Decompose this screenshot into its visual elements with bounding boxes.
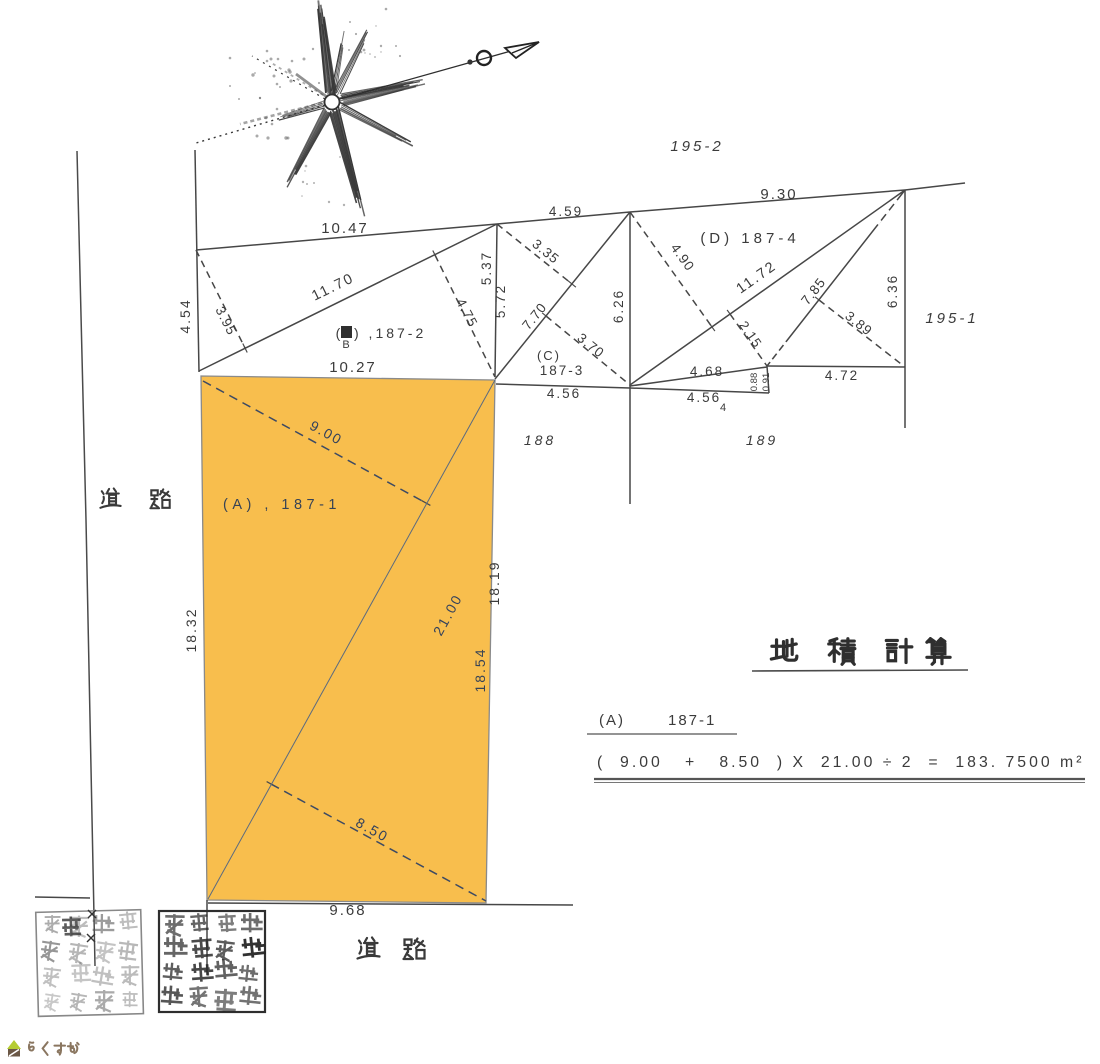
svg-text:195-2: 195-2 [670, 138, 723, 155]
svg-text:18.19: 18.19 [486, 560, 502, 605]
svg-text:9.68: 9.68 [329, 902, 366, 919]
svg-text:4.72: 4.72 [825, 368, 859, 383]
svg-text:6.26: 6.26 [611, 289, 626, 323]
svg-text:18.54: 18.54 [472, 647, 488, 692]
svg-text:) ,187-2: ) ,187-2 [354, 325, 426, 341]
svg-text:188: 188 [524, 432, 556, 448]
svg-text:B: B [342, 339, 349, 351]
svg-text:4: 4 [720, 402, 726, 414]
svg-text:187-3: 187-3 [540, 363, 585, 378]
svg-text:(A): (A) [599, 712, 625, 729]
svg-text:(D) 187-4: (D) 187-4 [700, 230, 799, 247]
svg-text:4.68: 4.68 [690, 364, 724, 379]
svg-text:10.27: 10.27 [329, 359, 377, 376]
svg-text:189: 189 [746, 432, 778, 448]
svg-text:5.37: 5.37 [479, 251, 494, 285]
svg-text:(C): (C) [537, 348, 561, 363]
svg-text:9.30: 9.30 [760, 186, 797, 203]
svg-text:187-1: 187-1 [668, 712, 716, 729]
svg-text:18.32: 18.32 [183, 607, 199, 652]
svg-text:( 9.00 + 8.50 ) X 21.00: ( 9.00 + 8.50 ) X 21.00 ÷ 2 = 183. 7500 … [597, 754, 1084, 771]
svg-text:(: ( [336, 325, 341, 341]
svg-text:0.88: 0.88 [749, 373, 760, 392]
svg-text:6.36: 6.36 [885, 274, 900, 308]
svg-text:4.56: 4.56 [687, 390, 721, 405]
svg-text:4.59: 4.59 [549, 204, 583, 219]
svg-text:4.54: 4.54 [177, 298, 193, 333]
svg-text:4.56: 4.56 [547, 386, 581, 401]
svg-text:10.47: 10.47 [321, 220, 369, 237]
svg-text:0.91: 0.91 [761, 373, 772, 392]
svg-text:5.72: 5.72 [493, 284, 508, 318]
svg-text:(A) , 187-1: (A) , 187-1 [223, 497, 341, 513]
svg-text:195-1: 195-1 [925, 310, 978, 327]
